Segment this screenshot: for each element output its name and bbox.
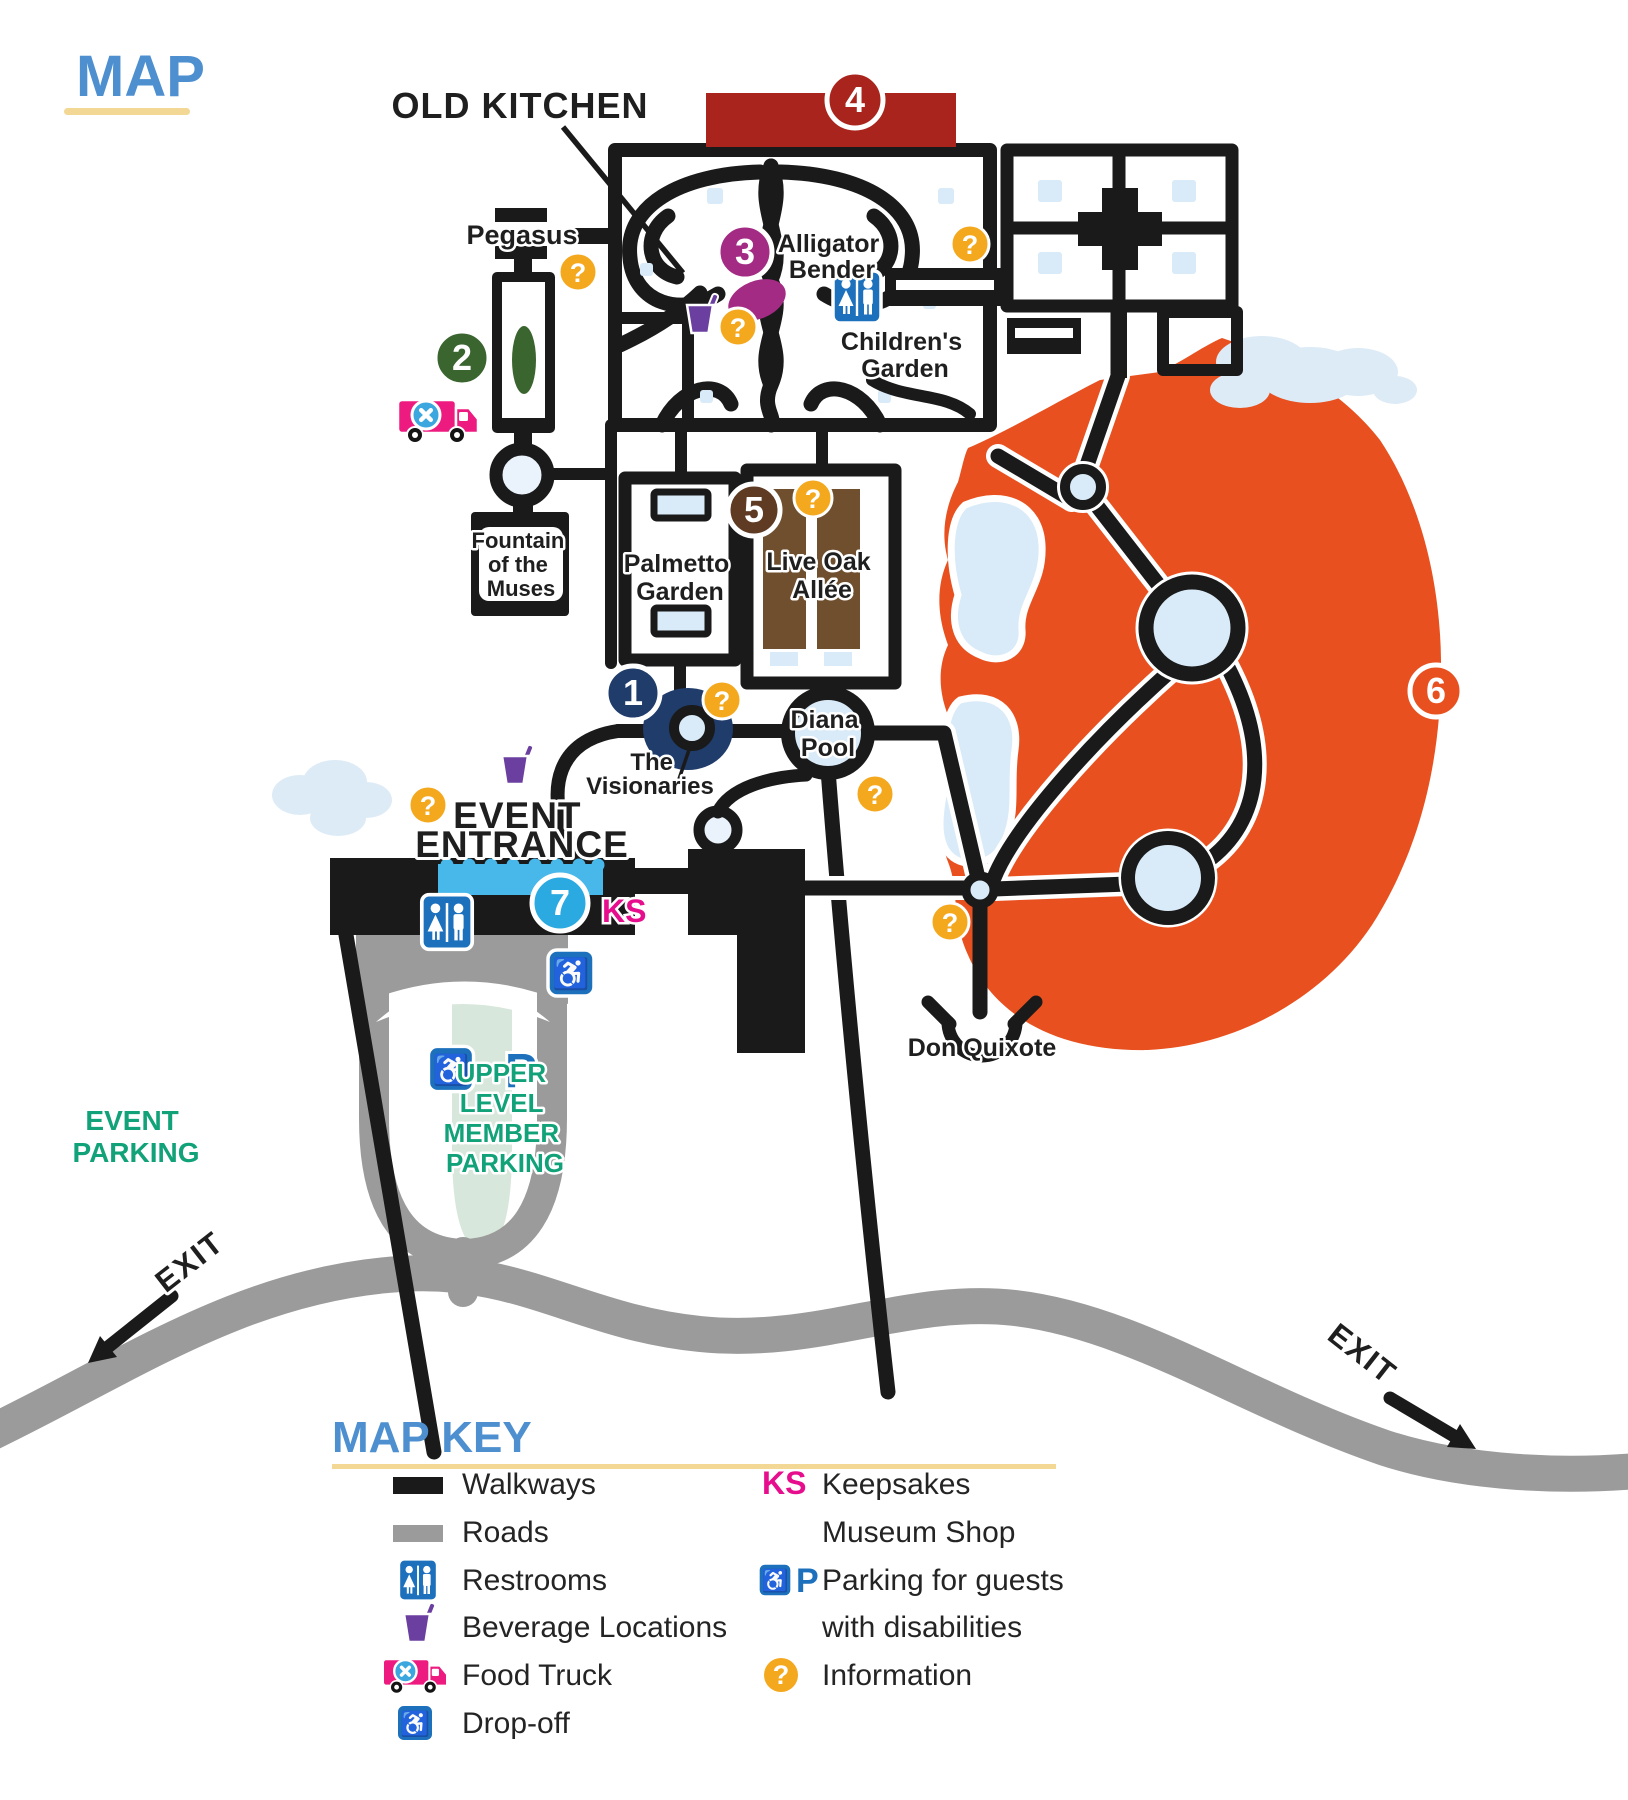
key-label-parking-1: Parking for guests <box>822 1564 1064 1597</box>
key-label-food-truck: Food Truck <box>462 1659 613 1692</box>
information-icon: ? <box>764 1658 798 1692</box>
marker-3: 3 <box>718 225 772 279</box>
key-label-parking-2: with disabilities <box>821 1611 1022 1644</box>
svg-text:?: ? <box>805 484 822 514</box>
walkway-south <box>828 770 888 1392</box>
svg-text:2: 2 <box>452 337 472 378</box>
garden-event-map-page: ♿ <box>0 0 1628 1800</box>
information-icon: ? <box>951 225 989 263</box>
svg-text:5: 5 <box>744 489 764 530</box>
title-underline <box>64 108 190 115</box>
drop-off-icon <box>548 950 594 996</box>
key-label-keepsakes: Keepsakes <box>822 1468 970 1501</box>
pegasus-lawn <box>512 326 536 394</box>
svg-text:?: ? <box>773 1660 790 1690</box>
key-label-walkways: Walkways <box>462 1468 596 1501</box>
key-label-information: Information <box>822 1659 972 1692</box>
walkways-swatch <box>393 1477 443 1494</box>
accessible-parking-icon <box>758 1563 791 1596</box>
information-icon: ? <box>719 308 757 346</box>
information-icon: ? <box>794 479 832 517</box>
map-key: MAP KEY Walkways Roads Restrooms Beverag… <box>332 1413 1064 1741</box>
page-title: MAP <box>76 44 205 109</box>
svg-text:?: ? <box>942 908 959 938</box>
beverage-icon <box>502 744 534 784</box>
key-ks-symbol: KS <box>762 1465 806 1501</box>
information-icon: ? <box>931 903 969 941</box>
svg-text:7: 7 <box>550 882 570 923</box>
label-event-parking: EVENT PARKING <box>72 1105 199 1168</box>
label-exit-left: EXIT <box>148 1224 230 1299</box>
information-icon: ? <box>559 253 597 291</box>
pool-node-south <box>1128 838 1208 918</box>
svg-text:3: 3 <box>735 231 755 272</box>
svg-text:4: 4 <box>845 79 865 120</box>
label-keepsakes-shop: KS <box>602 893 646 929</box>
label-childrens-garden: Children's Garden <box>841 328 969 383</box>
marker-5: 5 <box>728 484 780 536</box>
restrooms-icon <box>422 895 472 950</box>
label-diana-pool: Diana Pool <box>790 706 865 762</box>
sculpture-zone-area <box>939 338 1441 1050</box>
information-icon: ? <box>703 681 741 719</box>
food-truck-icon <box>383 1659 447 1693</box>
park-map: ♿ <box>0 0 1628 1800</box>
cloud-west <box>272 760 392 836</box>
restrooms-icon <box>399 1559 437 1601</box>
information-icon: ? <box>409 786 447 824</box>
marker-6: 6 <box>1410 665 1462 717</box>
marker-2: 2 <box>435 331 489 385</box>
svg-text:1: 1 <box>623 672 643 713</box>
parterre-garden <box>1007 150 1237 378</box>
svg-text:?: ? <box>570 258 587 288</box>
label-alligator-bender: Alligator Bender <box>778 230 886 284</box>
information-icon: ? <box>856 775 894 813</box>
map-key-title: MAP KEY <box>332 1413 532 1462</box>
page-header: MAP <box>64 44 205 115</box>
key-label-beverage: Beverage Locations <box>462 1611 727 1644</box>
marker-4: 4 <box>827 72 883 128</box>
svg-text:?: ? <box>714 686 731 716</box>
drop-off-icon <box>397 1705 434 1742</box>
svg-text:6: 6 <box>1426 670 1446 711</box>
svg-text:?: ? <box>730 313 747 343</box>
roads <box>0 925 1628 1474</box>
beverage-icon <box>404 1602 436 1642</box>
marker-1: 1 <box>606 666 660 720</box>
key-label-restrooms: Restrooms <box>462 1564 607 1597</box>
exit-right-arrow-shaft <box>1390 1398 1454 1436</box>
label-old-kitchen: OLD KITCHEN <box>392 85 649 126</box>
marker-7: 7 <box>532 875 588 931</box>
junction-node <box>1065 469 1101 505</box>
pool-node-large <box>1146 582 1238 674</box>
svg-text:?: ? <box>420 791 437 821</box>
label-exit-right: EXIT <box>1321 1316 1403 1391</box>
roads-swatch <box>393 1525 443 1542</box>
label-pegasus: Pegasus <box>466 220 577 250</box>
label-palmetto-garden: Palmetto Garden <box>624 550 737 606</box>
key-parking-p: P <box>796 1562 819 1600</box>
svg-text:?: ? <box>962 230 979 260</box>
key-label-museum-shop: Museum Shop <box>822 1516 1015 1549</box>
food-truck-icon <box>398 400 478 443</box>
key-label-roads: Roads <box>462 1516 549 1549</box>
svg-text:?: ? <box>867 780 884 810</box>
don-quixote-node <box>966 876 994 904</box>
label-don-quixote: Don Quixote <box>908 1034 1057 1062</box>
label-upper-level-member-parking: UPPER LEVEL MEMBER PARKING <box>444 1058 567 1178</box>
key-label-drop-off: Drop-off <box>462 1707 570 1740</box>
